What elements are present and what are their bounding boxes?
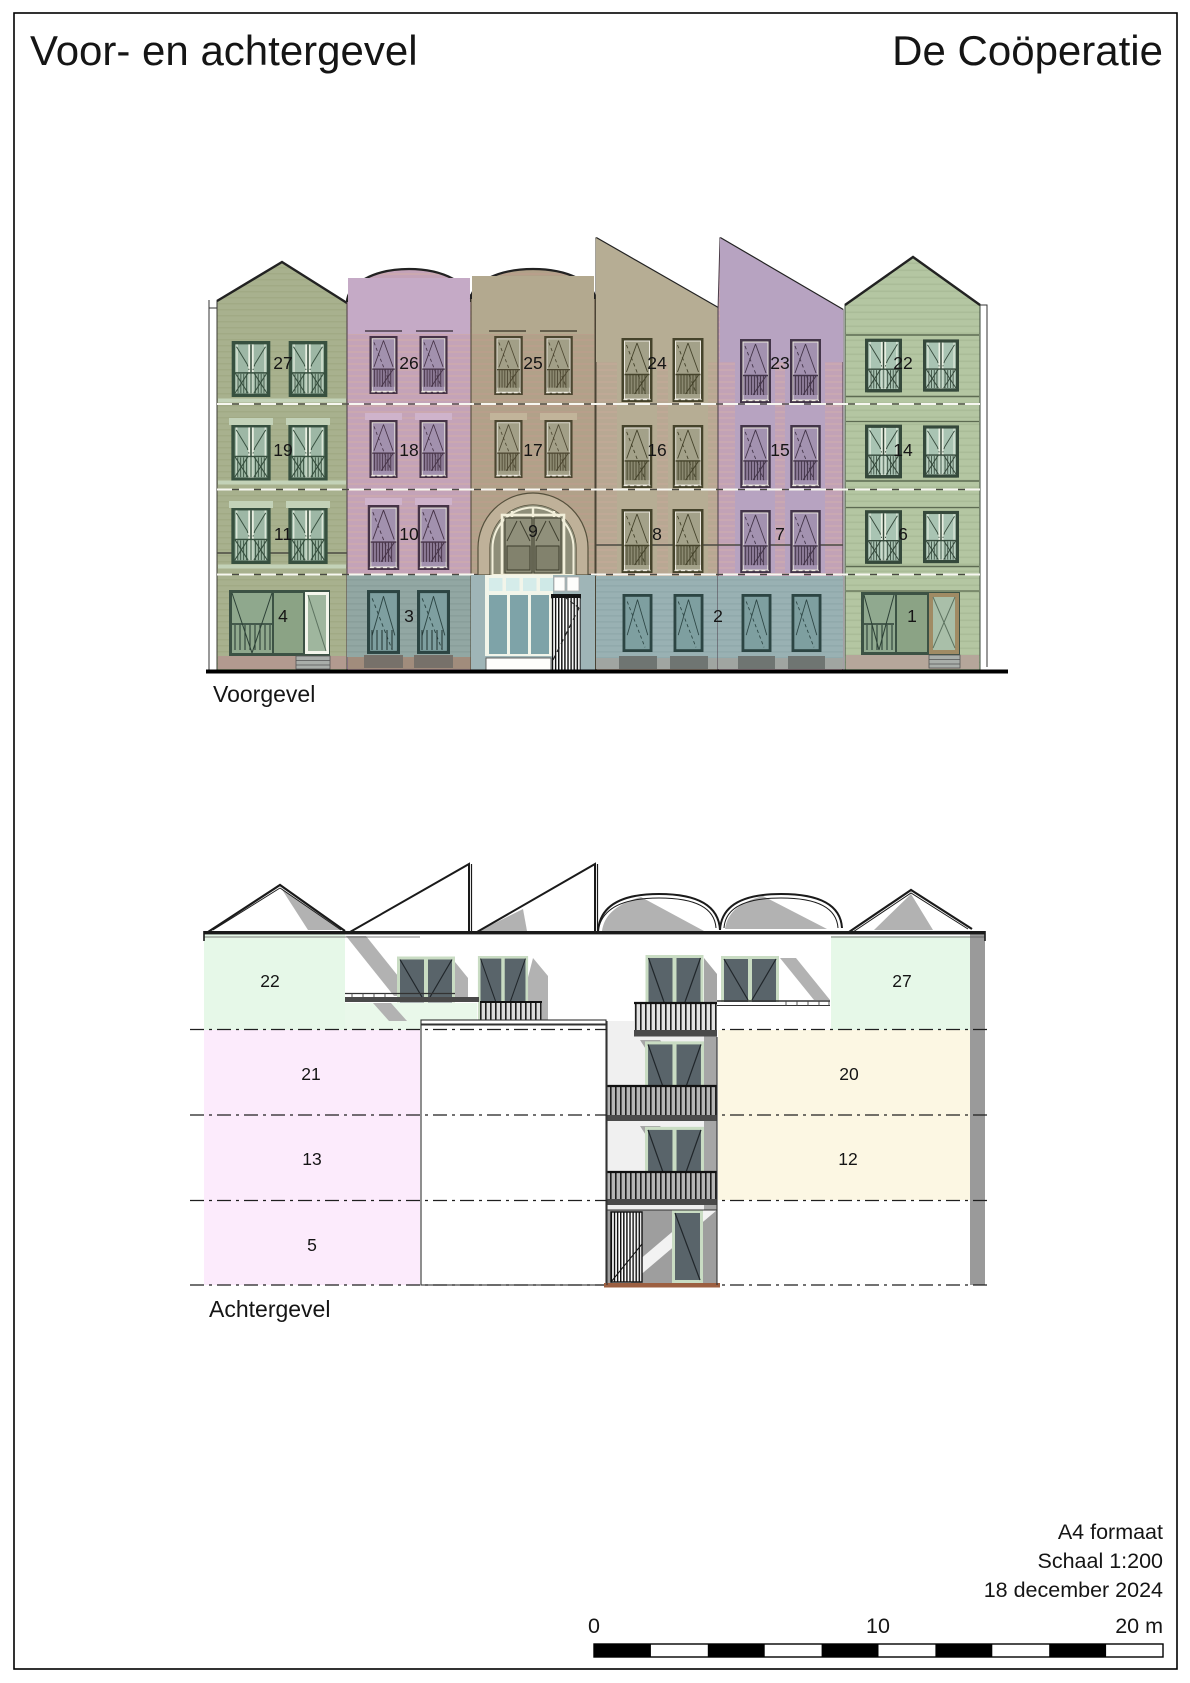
svg-text:22: 22 xyxy=(893,353,912,373)
svg-text:3: 3 xyxy=(404,606,414,626)
svg-text:8: 8 xyxy=(652,524,662,544)
svg-text:10: 10 xyxy=(866,1614,890,1638)
svg-text:18: 18 xyxy=(399,440,418,460)
svg-text:27: 27 xyxy=(892,971,911,991)
svg-text:12: 12 xyxy=(838,1149,857,1169)
svg-text:16: 16 xyxy=(647,440,666,460)
svg-text:A4 formaat: A4 formaat xyxy=(1058,1520,1163,1544)
svg-text:6: 6 xyxy=(898,524,908,544)
svg-text:22: 22 xyxy=(260,971,279,991)
svg-text:27: 27 xyxy=(273,353,292,373)
svg-text:24: 24 xyxy=(647,353,667,373)
svg-text:Voorgevel: Voorgevel xyxy=(213,681,315,707)
svg-text:18 december 2024: 18 december 2024 xyxy=(984,1578,1163,1602)
svg-text:21: 21 xyxy=(301,1064,320,1084)
svg-text:De Coöperatie: De Coöperatie xyxy=(892,27,1163,74)
svg-text:5: 5 xyxy=(307,1235,317,1255)
svg-text:11: 11 xyxy=(274,524,292,544)
svg-text:2: 2 xyxy=(713,606,723,626)
svg-text:14: 14 xyxy=(893,440,913,460)
svg-text:25: 25 xyxy=(523,353,542,373)
svg-text:9: 9 xyxy=(528,521,538,541)
svg-text:10: 10 xyxy=(399,524,419,544)
svg-text:0: 0 xyxy=(588,1614,600,1638)
svg-text:19: 19 xyxy=(273,440,292,460)
svg-text:Schaal 1:200: Schaal 1:200 xyxy=(1037,1549,1163,1573)
svg-text:20 m: 20 m xyxy=(1115,1614,1163,1638)
svg-text:15: 15 xyxy=(770,440,789,460)
svg-text:1: 1 xyxy=(907,606,917,626)
svg-text:26: 26 xyxy=(399,353,418,373)
svg-text:23: 23 xyxy=(770,353,789,373)
svg-text:7: 7 xyxy=(775,524,785,544)
svg-text:20: 20 xyxy=(839,1064,859,1084)
svg-text:4: 4 xyxy=(278,606,288,626)
svg-text:Voor- en achtergevel: Voor- en achtergevel xyxy=(30,27,418,74)
svg-text:Achtergevel: Achtergevel xyxy=(209,1296,330,1322)
svg-text:17: 17 xyxy=(523,440,542,460)
svg-text:13: 13 xyxy=(302,1149,321,1169)
